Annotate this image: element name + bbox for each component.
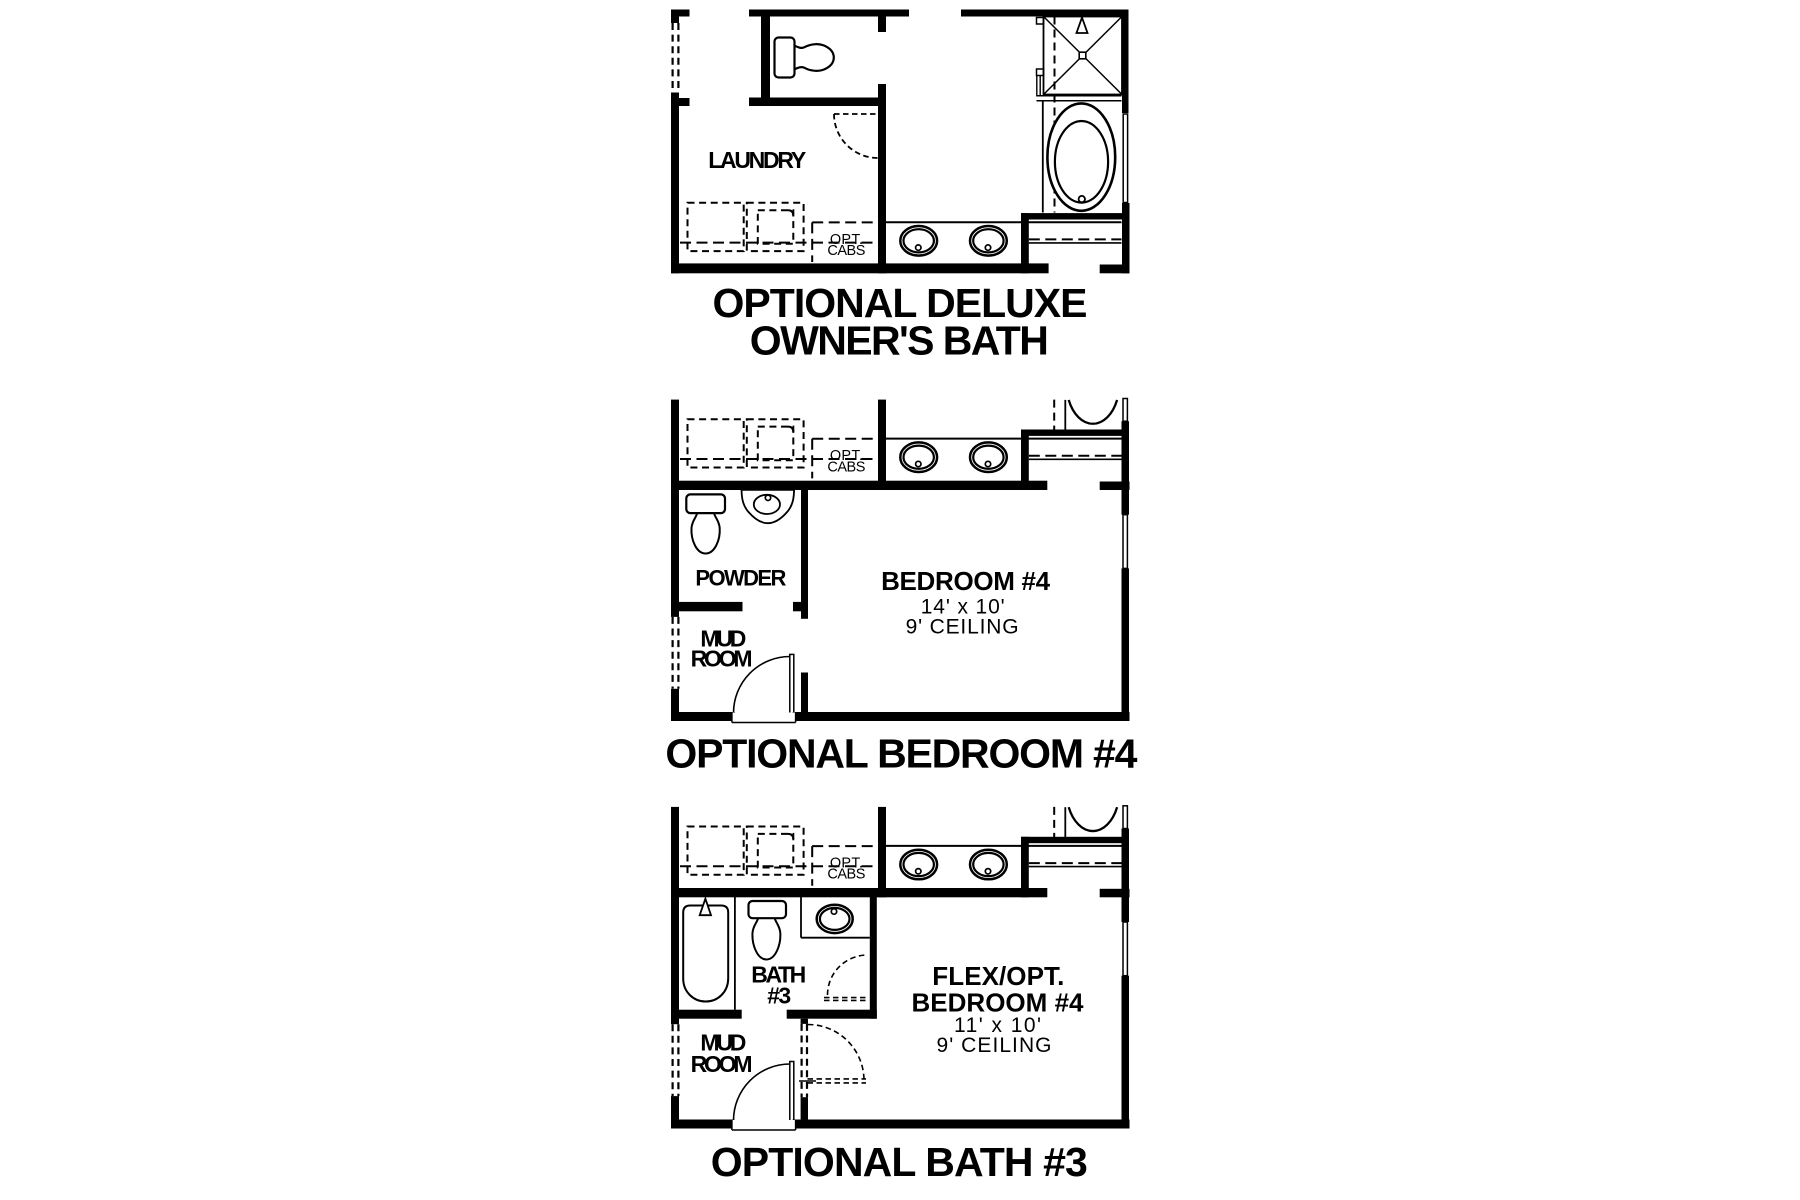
svg-text:OPTIONAL BEDROOM #4: OPTIONAL BEDROOM #4 [665,731,1137,777]
svg-text:#3: #3 [767,983,791,1009]
svg-text:CABS: CABS [827,867,865,883]
svg-text:BEDROOM #4: BEDROOM #4 [881,566,1051,596]
svg-text:9' CEILING: 9' CEILING [937,1034,1052,1057]
svg-text:OWNER'S BATH: OWNER'S BATH [750,318,1049,364]
svg-text:FLEX/OPT.: FLEX/OPT. [932,961,1064,991]
svg-text:LAUNDRY: LAUNDRY [708,147,806,173]
svg-text:9' CEILING: 9' CEILING [906,615,1019,638]
svg-text:ROOM: ROOM [691,645,753,671]
svg-text:ROOM: ROOM [691,1051,753,1077]
svg-text:CABS: CABS [827,243,865,259]
svg-text:POWDER: POWDER [695,566,786,591]
svg-text:OPTIONAL BATH #3: OPTIONAL BATH #3 [711,1139,1088,1185]
svg-text:CABS: CABS [827,459,865,475]
